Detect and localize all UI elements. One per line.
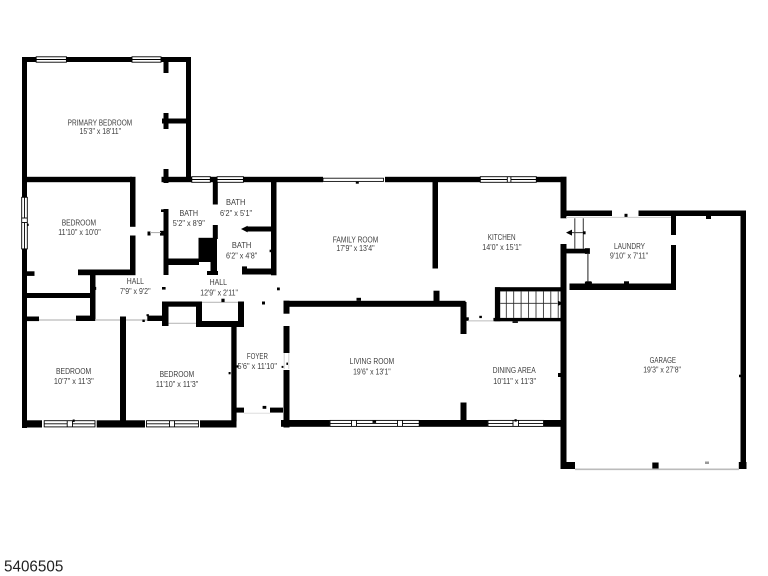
svg-text:11'10" x 11'3": 11'10" x 11'3" [156, 380, 199, 389]
svg-text:LAUNDRY: LAUNDRY [614, 241, 645, 251]
svg-text:BATH: BATH [232, 240, 252, 250]
svg-text:9'10" x 7'11": 9'10" x 7'11" [610, 251, 649, 260]
svg-text:KITCHEN: KITCHEN [488, 232, 516, 242]
svg-text:10'11" x 11'3": 10'11" x 11'3" [493, 377, 536, 386]
svg-text:GARAGE: GARAGE [650, 355, 677, 365]
svg-text:19'3" x 27'8": 19'3" x 27'8" [643, 366, 681, 375]
svg-text:11'10" x 10'0": 11'10" x 10'0" [58, 228, 101, 237]
svg-text:15'3" x 18'11": 15'3" x 18'11" [80, 127, 122, 136]
svg-text:6'2" x 4'8": 6'2" x 4'8" [226, 252, 258, 261]
svg-text:12'9" x 2'11": 12'9" x 2'11" [200, 288, 238, 297]
svg-text:5'6" x 11'10": 5'6" x 11'10" [237, 362, 277, 371]
svg-text:HALL: HALL [210, 277, 228, 287]
svg-text:PRIMARY BEDROOM: PRIMARY BEDROOM [68, 117, 133, 127]
svg-text:BEDROOM: BEDROOM [56, 366, 91, 376]
svg-text:6'2" x 5'1": 6'2" x 5'1" [220, 209, 252, 218]
svg-text:19'6" x 13'1": 19'6" x 13'1" [353, 367, 391, 376]
svg-text:BEDROOM: BEDROOM [62, 218, 96, 228]
svg-text:BATH: BATH [180, 208, 199, 218]
svg-text:5406505: 5406505 [4, 558, 64, 575]
svg-text:FOYER: FOYER [247, 351, 268, 361]
svg-text:LIVING ROOM: LIVING ROOM [350, 356, 395, 366]
svg-text:HALL: HALL [127, 276, 144, 286]
svg-text:14'0" x 15'1": 14'0" x 15'1" [482, 243, 521, 252]
svg-text:17'9" x 13'4": 17'9" x 13'4" [336, 244, 375, 253]
svg-text:10'7" x 11'3": 10'7" x 11'3" [54, 377, 94, 386]
svg-text:5'2" x 8'9": 5'2" x 8'9" [173, 219, 205, 228]
svg-text:BATH: BATH [226, 197, 245, 207]
svg-text:DINING AREA: DINING AREA [493, 365, 536, 375]
svg-text:BEDROOM: BEDROOM [160, 369, 195, 379]
svg-text:7'9" x 9'2": 7'9" x 9'2" [120, 287, 151, 296]
